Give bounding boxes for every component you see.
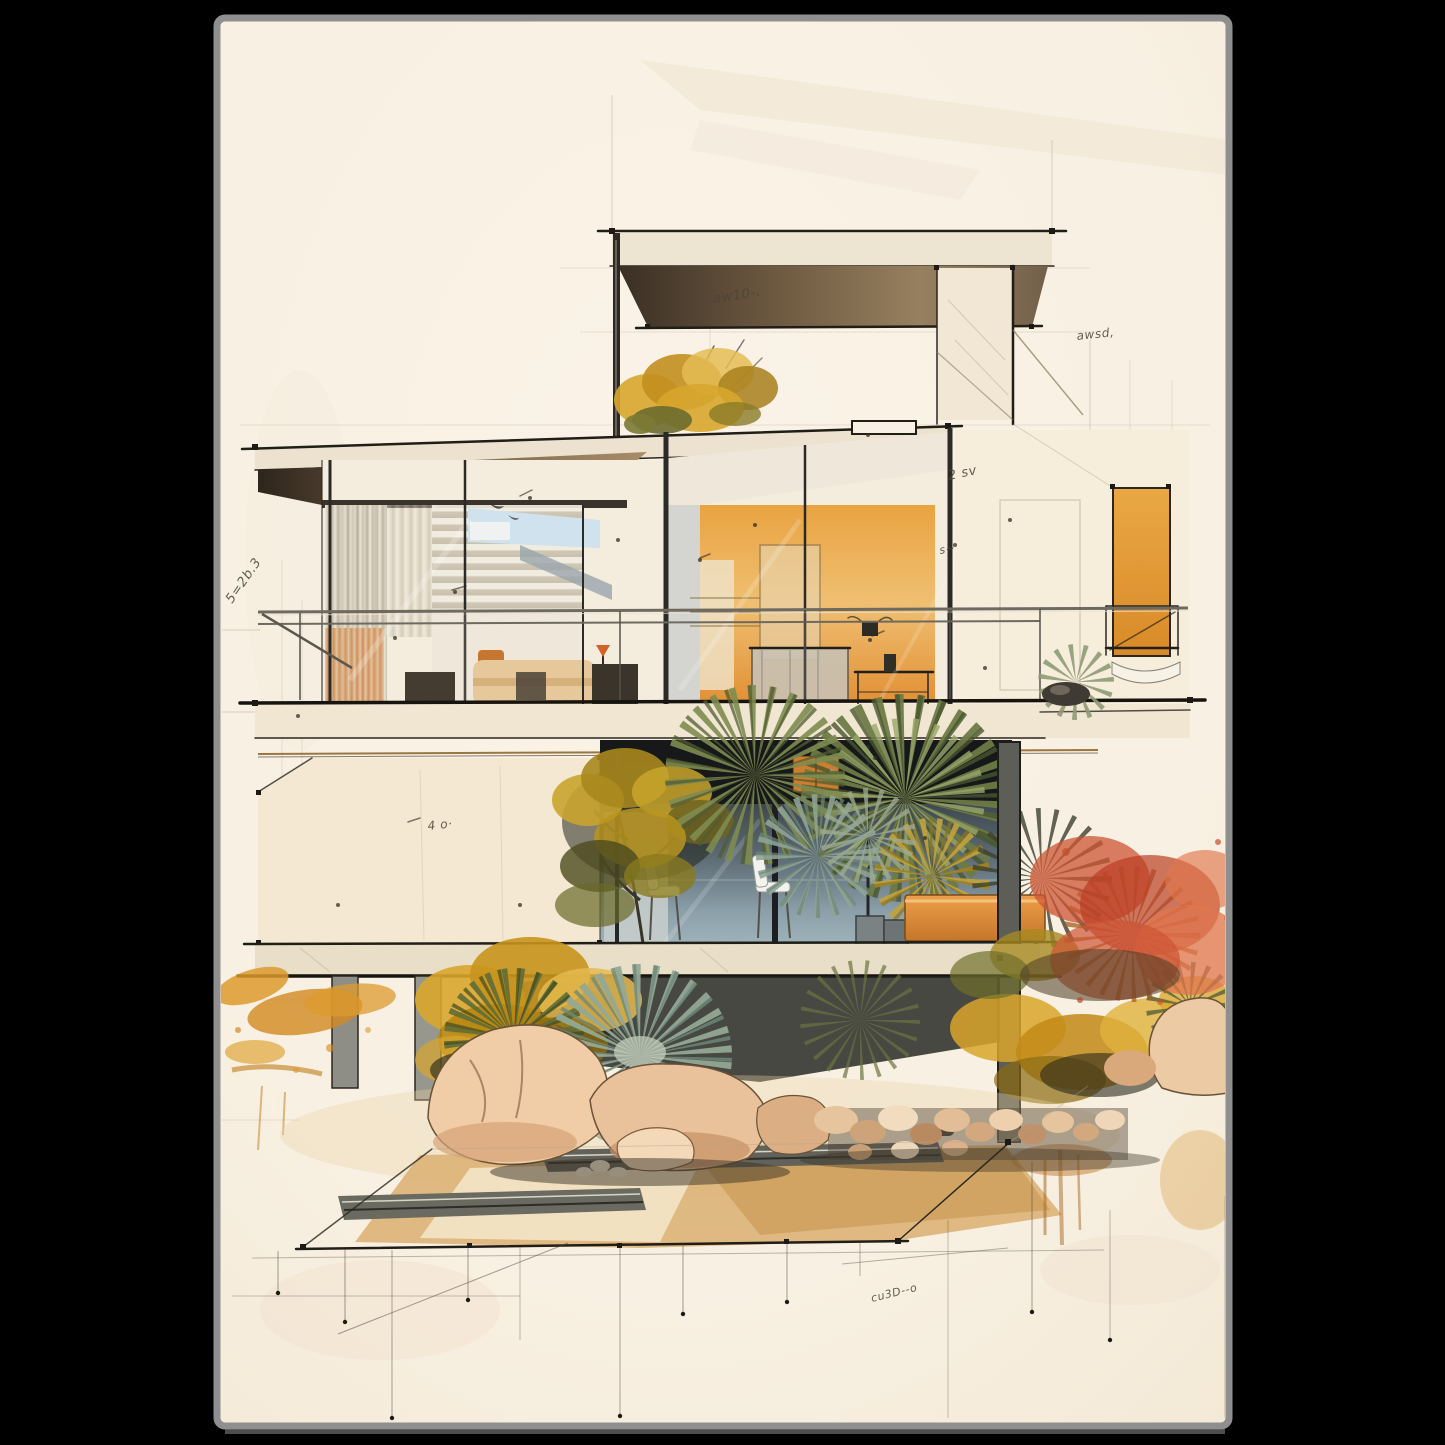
kitchen-island — [752, 648, 848, 700]
ground-slab — [238, 942, 1060, 976]
poster-bottom-shadow — [225, 1429, 1225, 1434]
product-photo-canvas: 5=2b.3 aw10-. awsd, 2 sv s~ 4 o· cu3D--o — [0, 0, 1445, 1445]
table-vase — [884, 654, 896, 672]
annotation-5: s~ — [938, 541, 956, 557]
parapet-panel — [258, 758, 600, 944]
dresser — [405, 672, 455, 705]
upper-floor — [322, 428, 955, 706]
curtain-orange-hem — [325, 628, 383, 704]
canopy-column — [937, 268, 1013, 420]
poster-artwork: 5=2b.3 aw10-. awsd, 2 sv s~ 4 o· cu3D--o — [0, 0, 1445, 1445]
canopy-slab — [612, 233, 1052, 266]
bedside-chest — [592, 664, 638, 706]
annotation-6: 4 o· — [427, 816, 453, 833]
roof-notch — [852, 421, 916, 434]
